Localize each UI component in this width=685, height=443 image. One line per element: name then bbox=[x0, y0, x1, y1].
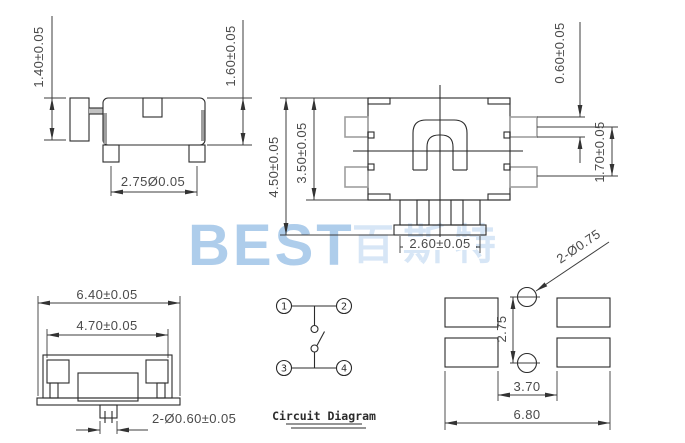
side-stem-fill bbox=[89, 109, 103, 115]
side-view: 1.40±0.05 1.60±0.05 2.75Ø0.05 bbox=[31, 16, 252, 196]
dim-side-button-height: 1.40±0.05 bbox=[31, 26, 46, 87]
front-center-block bbox=[78, 373, 138, 401]
pad-top-right bbox=[557, 298, 610, 327]
edge-square-left-bottom bbox=[368, 164, 374, 170]
terminal-right-top bbox=[510, 117, 537, 137]
side-terminal-left bbox=[104, 113, 108, 144]
corner-notch-tr bbox=[488, 98, 510, 104]
side-foot-right bbox=[189, 145, 205, 162]
dim-top-button-width: 2.60±0.05 bbox=[409, 236, 470, 251]
pad-top-left bbox=[445, 298, 498, 327]
dim-side-feet-pitch: 2.75Ø0.05 bbox=[121, 174, 185, 189]
circuit-diagram: 1 2 3 4 Circuit Diagram bbox=[272, 299, 376, 429]
edge-square-right-bottom bbox=[504, 164, 510, 170]
terminal-right-bottom bbox=[510, 167, 537, 187]
dim-terminal-pitch: 1.70±0.05 bbox=[592, 121, 607, 182]
watermark-latin-text: BEST bbox=[188, 213, 355, 278]
side-top-tab bbox=[143, 98, 162, 117]
terminal-number-2: 2 bbox=[341, 302, 347, 313]
pad-bottom-right bbox=[557, 338, 610, 367]
front-block-right bbox=[146, 360, 168, 383]
edge-square-right-top bbox=[504, 132, 510, 138]
side-body bbox=[103, 98, 205, 145]
corner-notch-bl bbox=[368, 194, 390, 200]
dim-side-body-height: 1.60±0.05 bbox=[223, 25, 238, 86]
dim-front-body-width: 4.70±0.05 bbox=[76, 318, 137, 333]
technical-drawing: BEST 百斯特 1.40±0.05 1.60±0.05 2.75Ø0.05 bbox=[0, 0, 685, 443]
front-body bbox=[43, 355, 172, 398]
side-terminal-right bbox=[201, 110, 205, 141]
dim-pcb-pad-gap: 3.70 bbox=[514, 379, 541, 394]
dim-pcb-holes: 2-Ø0.75 bbox=[554, 226, 604, 266]
dim-terminal-thickness: 0.60±0.05 bbox=[552, 22, 567, 83]
front-view: 6.40±0.05 4.70±0.05 2-Ø0.60±0.05 bbox=[37, 287, 236, 434]
terminal-number-4: 4 bbox=[341, 364, 347, 375]
dim-front-stem: 2-Ø0.60±0.05 bbox=[152, 411, 236, 426]
front-stem bbox=[100, 405, 117, 418]
dim-pcb-overall-width: 6.80 bbox=[514, 407, 541, 422]
front-block-left bbox=[47, 360, 69, 383]
corner-notch-tl bbox=[368, 98, 390, 104]
side-button bbox=[70, 98, 89, 141]
switch-contact-top bbox=[311, 326, 318, 333]
terminal-number-1: 1 bbox=[281, 302, 287, 313]
terminal-number-3: 3 bbox=[281, 364, 287, 375]
circuit-diagram-label: Circuit Diagram bbox=[272, 409, 376, 423]
edge-square-left-top bbox=[368, 132, 374, 138]
dim-top-body-height: 3.50±0.05 bbox=[294, 122, 309, 183]
switch-contact-bottom bbox=[311, 345, 318, 352]
top-body bbox=[368, 98, 510, 200]
drawing-canvas: BEST 百斯特 1.40±0.05 1.60±0.05 2.75Ø0.05 bbox=[0, 0, 685, 443]
pad-bottom-left bbox=[445, 338, 498, 367]
terminal-left-bottom bbox=[345, 167, 368, 187]
terminal-left-top bbox=[345, 117, 368, 137]
switch-blade bbox=[317, 332, 325, 346]
dim-pcb-hole-pitch: 2.75 bbox=[494, 316, 509, 343]
dim-front-overall-width: 6.40±0.05 bbox=[76, 287, 137, 302]
corner-notch-br bbox=[488, 194, 510, 200]
dim-top-overall-height: 4.50±0.05 bbox=[266, 136, 281, 197]
side-foot-left bbox=[103, 145, 119, 162]
